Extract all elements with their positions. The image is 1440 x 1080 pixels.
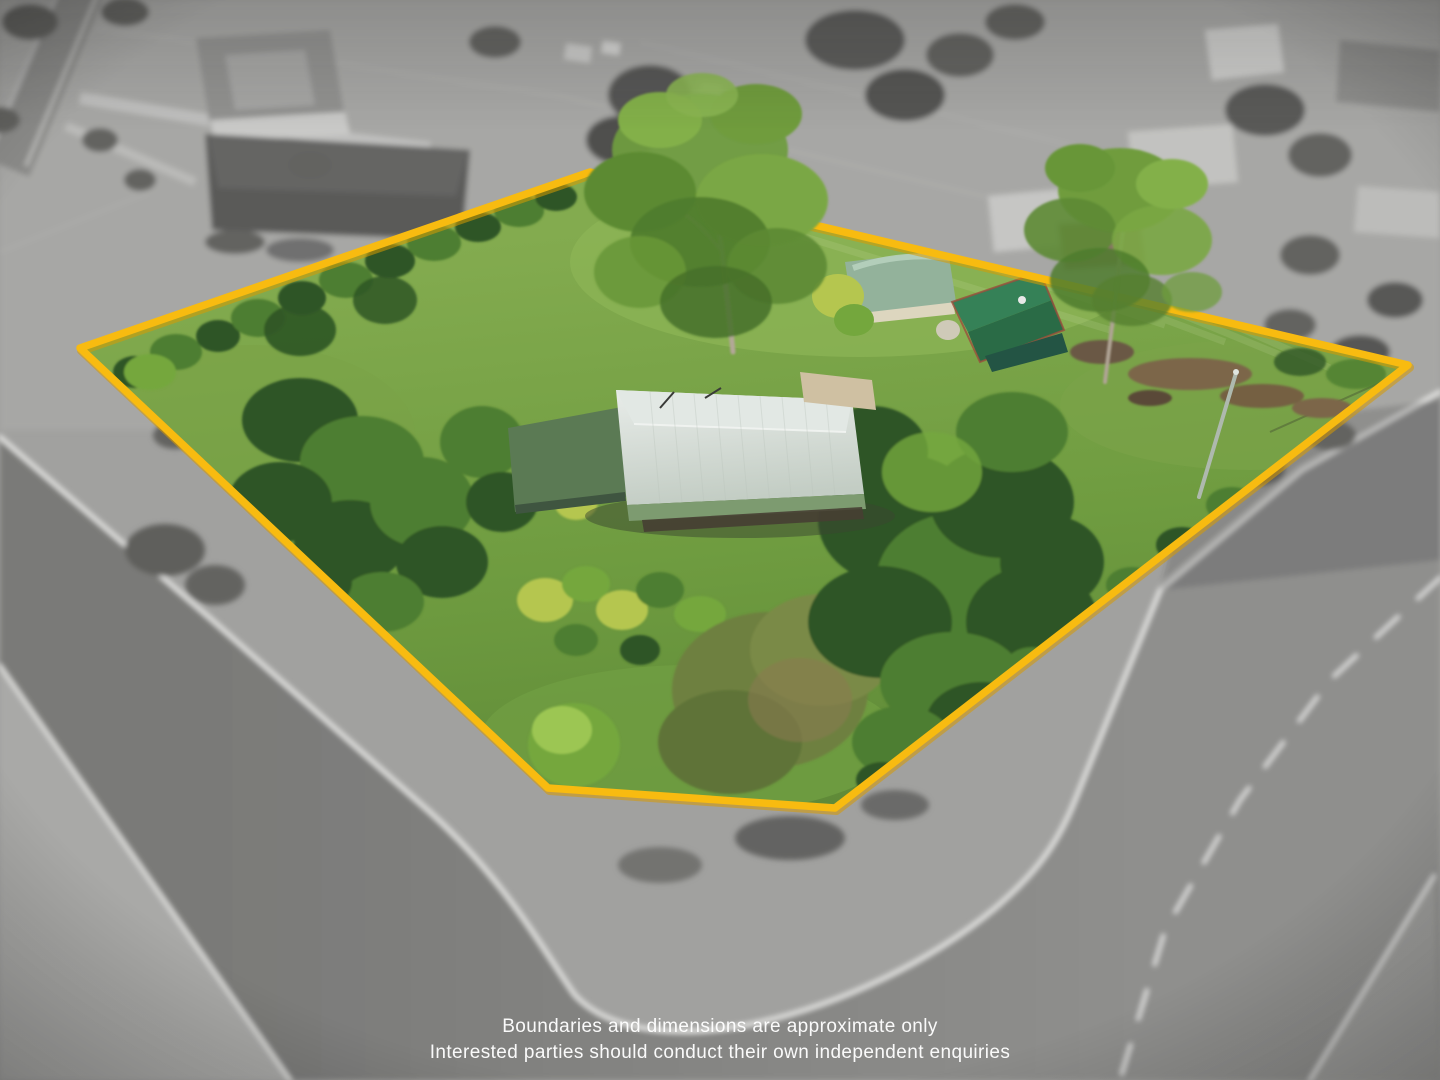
aerial-property-photo: Boundaries and dimensions are approximat… (0, 0, 1440, 1080)
disclaimer-line-1: Boundaries and dimensions are approximat… (0, 1014, 1440, 1040)
top-shade (0, 0, 1440, 130)
disclaimer-line-2: Interested parties should conduct their … (0, 1040, 1440, 1066)
photo-canvas (0, 0, 1440, 1080)
disclaimer-text: Boundaries and dimensions are approximat… (0, 1014, 1440, 1066)
vignette (0, 0, 1440, 1080)
